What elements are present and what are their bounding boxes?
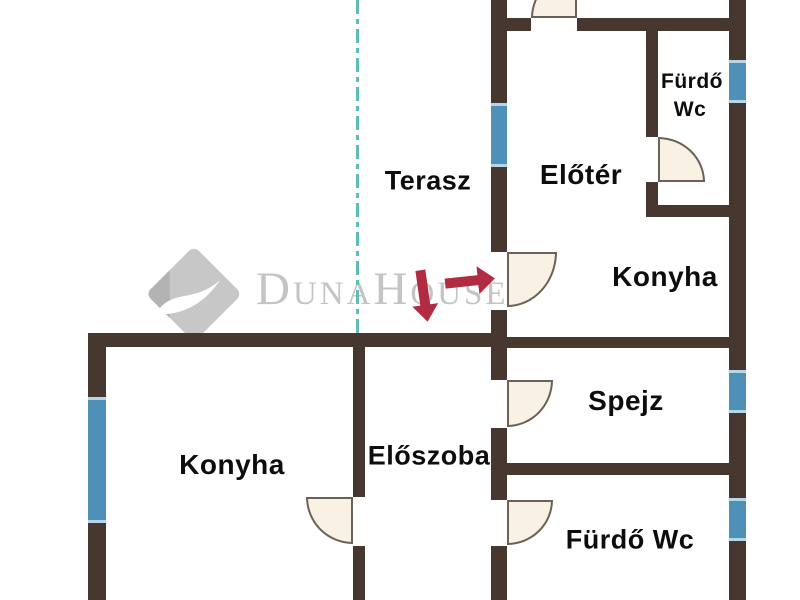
wall-segment: [729, 535, 746, 600]
room-label-spejz: Spejz: [588, 385, 664, 417]
wall-segment: [577, 18, 746, 31]
wall-segment: [88, 333, 507, 347]
wall-segment: [729, 407, 746, 498]
room-label-konyha-top: Konyha: [612, 261, 718, 293]
room-label-eloszoba: Előszoba: [368, 441, 491, 472]
wall-segment: [497, 18, 531, 31]
room-label-furdo-wc-top-1: Fürdő: [661, 70, 723, 94]
door-arc-furdo-top: [658, 137, 705, 182]
door-arc-entrance-top: [531, 0, 577, 18]
wall-segment: [353, 333, 365, 497]
wall-segment: [491, 546, 507, 600]
entrance-arrow-down: [408, 268, 441, 323]
wall-segment: [88, 333, 106, 397]
property-boundary-dashed-line: [356, 0, 359, 333]
arrow-shaft: [415, 270, 430, 308]
wall-segment: [491, 161, 507, 252]
room-label-furdo-wc-bottom: Fürdő Wc: [566, 525, 694, 556]
wall-segment: [88, 517, 106, 600]
room-label-eloter: Előtér: [540, 159, 622, 191]
wall-segment: [491, 0, 507, 103]
window: [88, 397, 106, 523]
room-label-terasz: Terasz: [385, 166, 472, 197]
window: [729, 370, 746, 413]
wall-segment: [646, 205, 736, 217]
wall-segment: [353, 546, 365, 600]
floor-plan: DunaHouse TeraszElőtérFürdőWcKonyhaSpejz…: [0, 0, 800, 600]
door-arc-spejz: [507, 380, 553, 427]
arrow-head: [476, 264, 496, 294]
room-label-furdo-wc-top-2: Wc: [674, 98, 707, 122]
window: [729, 60, 746, 103]
wall-segment: [497, 463, 746, 475]
arrow-head: [412, 303, 440, 323]
door-arc-terasz-eloter: [507, 252, 557, 307]
wall-segment: [729, 0, 746, 60]
wall-segment: [497, 337, 746, 348]
wall-segment: [646, 22, 658, 137]
arrow-shaft: [445, 275, 481, 289]
wall-segment: [729, 97, 746, 370]
entrance-arrow-right: [444, 264, 497, 297]
room-label-konyha-left: Konyha: [179, 449, 285, 481]
door-arc-furdo-bottom: [507, 500, 553, 545]
window: [729, 498, 746, 541]
door-arc-konyha-left: [306, 497, 353, 544]
window: [491, 103, 507, 167]
